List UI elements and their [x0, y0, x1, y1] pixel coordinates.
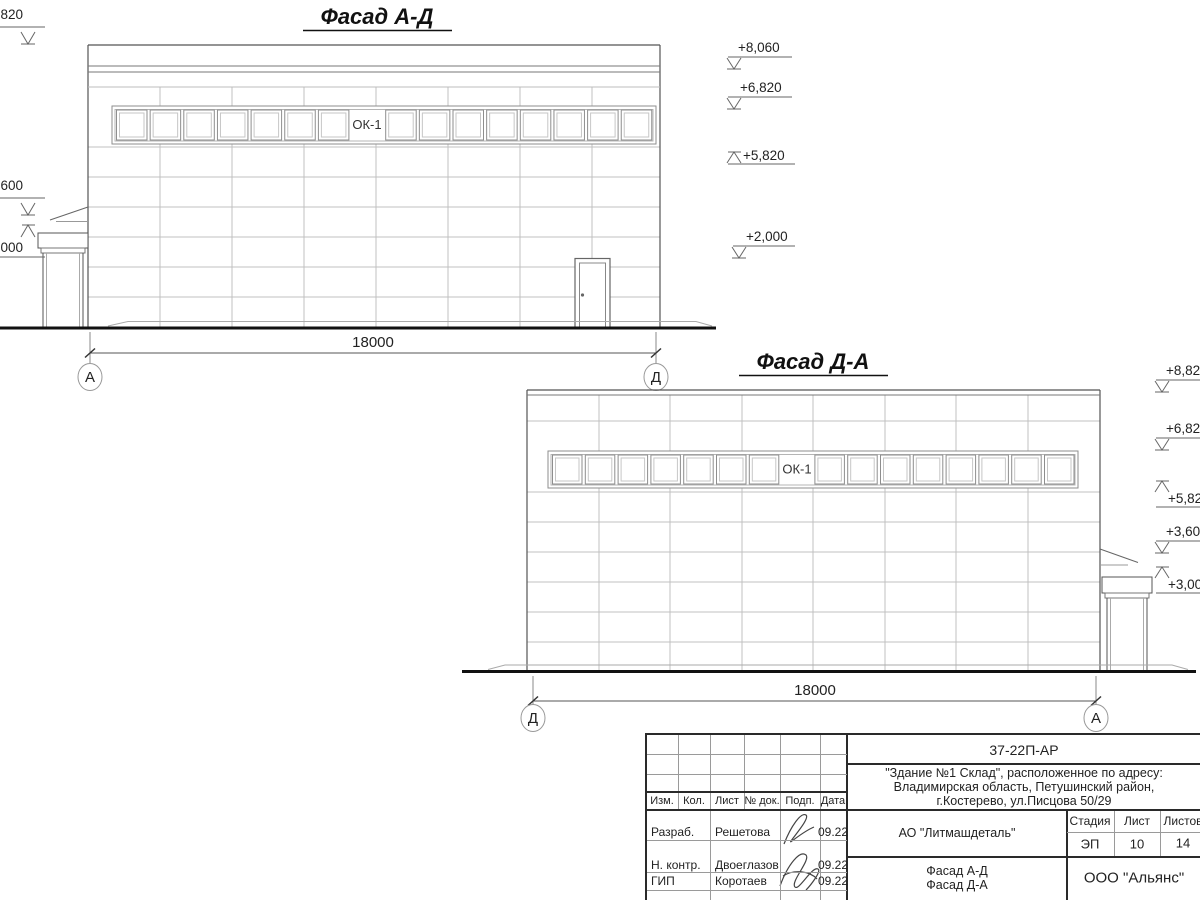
facade-ad-title: Фасад А-Д: [321, 4, 434, 29]
window-band-label: ОК-1: [352, 117, 381, 132]
axis-bubble-a: А: [78, 364, 102, 391]
object-address-line: Владимирская область, Петушинский район,: [894, 780, 1155, 794]
row-name: Коротаев: [715, 874, 767, 888]
sheet-title-line: Фасад Д-А: [926, 878, 987, 892]
row-date: 09.22: [818, 825, 848, 839]
svg-text:А: А: [85, 369, 95, 386]
elevation-mark-icon: [21, 225, 35, 237]
door-handle: [581, 293, 584, 296]
facade-da-dimension: 18000: [528, 676, 1101, 711]
drawing-sheet: { "facade1": { "title": "Фасад А-Д", "wi…: [0, 0, 1200, 900]
elevation-mark: +5,82: [1155, 481, 1200, 507]
facade-da-title: Фасад Д-А: [757, 349, 870, 374]
svg-text:+6,82: +6,82: [1166, 421, 1200, 436]
ground-line: [0, 327, 716, 330]
col-kol: Кол.: [683, 795, 705, 807]
facade-ad: Фасад А-Д ОК-1: [0, 4, 795, 391]
facade-da: Фасад Д-А ОК-1: [462, 349, 1200, 732]
sheet-title-line: Фасад А-Д: [926, 864, 987, 878]
row-role: Разраб.: [651, 825, 694, 839]
elevation-mark-icon: [732, 247, 746, 258]
stage-header: Стадия: [1070, 814, 1111, 828]
col-izm: Изм.: [650, 795, 674, 807]
elevation-mark: +3,00: [1155, 567, 1200, 593]
row-role: Н. контр.: [651, 858, 701, 872]
doc-number: 37-22П-АР: [989, 742, 1058, 758]
svg-text:+6,820: +6,820: [740, 80, 782, 95]
elevation-mark: +8,060: [727, 40, 792, 69]
svg-text:+3,60: +3,60: [1166, 524, 1200, 539]
svg-text:820: 820: [0, 7, 23, 22]
svg-text:+8,82: +8,82: [1166, 363, 1200, 378]
elevation-mark: 600: [0, 178, 45, 215]
elevation-mark: +6,82: [1155, 421, 1200, 450]
elevation-mark-icon: [1155, 542, 1169, 553]
axis-bubble-a: А: [1084, 705, 1108, 732]
svg-text:+5,820: +5,820: [743, 148, 785, 163]
sheet-header: Лист: [1124, 814, 1150, 828]
title-block: Изм. Кол. Лист № док. Подп. Дата Разраб.…: [645, 733, 1200, 900]
sheets-header: Листов: [1164, 814, 1200, 828]
client-name: АО "Литмашдеталь": [899, 826, 1016, 840]
axis-bubble-d: Д: [644, 364, 668, 391]
elevation-mark: +3,60: [1155, 524, 1200, 553]
svg-text:+8,060: +8,060: [738, 40, 780, 55]
row-name: Двоеглазов: [715, 858, 779, 872]
svg-text:+3,00: +3,00: [1168, 577, 1200, 592]
row-role: ГИП: [651, 874, 675, 888]
facade-ad-window-band: ОК-1: [112, 106, 656, 144]
organization-name: ООО "Альянс": [1084, 870, 1184, 887]
row-date: 09.22: [818, 858, 848, 872]
dimension-value: 18000: [352, 334, 394, 351]
canopy-slope: [50, 207, 88, 220]
svg-text:А: А: [1091, 710, 1101, 727]
ground-line: [462, 670, 1196, 673]
stage-value: ЭП: [1081, 837, 1100, 852]
apron-line: [488, 665, 1188, 670]
elevation-mark-icon: [1155, 381, 1169, 392]
elevation-mark-icon: [727, 58, 741, 69]
object-address-line: г.Костерево, ул.Писцова 50/29: [937, 794, 1112, 808]
facade-da-panel-grid: [527, 395, 1100, 672]
elevation-mark: +6,820: [727, 80, 792, 109]
svg-text:Д: Д: [651, 369, 661, 386]
col-ndok: № док.: [744, 795, 779, 807]
sheet-value: 10: [1130, 837, 1144, 852]
facade-da-annex: [1100, 549, 1152, 670]
svg-text:600: 600: [0, 178, 23, 193]
elevation-mark-icon: [727, 152, 741, 163]
svg-text:000: 000: [0, 240, 23, 255]
elevation-mark: 820: [0, 7, 45, 44]
elevation-mark-icon: [1155, 567, 1169, 578]
axis-bubble-d: Д: [521, 705, 545, 732]
facade-ad-door: [575, 259, 610, 328]
svg-text:+5,82: +5,82: [1168, 491, 1200, 506]
elevation-mark-icon: [727, 98, 741, 109]
col-podp: Подп.: [785, 795, 814, 807]
apron-line: [108, 322, 712, 327]
facade-da-window-band: ОК-1: [548, 451, 1078, 488]
row-name: Решетова: [715, 825, 770, 839]
facade-ad-annex: [38, 207, 88, 328]
elevation-mark: +2,000: [732, 229, 795, 258]
canopy-slope: [1100, 549, 1138, 563]
sheets-value: 14: [1176, 836, 1190, 851]
facade-ad-dimension: 18000: [85, 332, 661, 363]
elevation-mark: +8,82: [1155, 363, 1200, 392]
elevation-mark: +5,820: [727, 148, 795, 164]
dimension-value: 18000: [794, 682, 836, 699]
elevation-mark-icon: [21, 32, 35, 44]
elevation-mark-icon: [1155, 481, 1169, 492]
elevation-mark-icon: [1155, 439, 1169, 450]
col-data: Дата: [821, 795, 845, 807]
svg-text:Д: Д: [528, 710, 538, 727]
elevation-mark-icon: [21, 203, 35, 215]
window-band-label: ОК-1: [782, 462, 811, 477]
row-date: 09.22: [818, 874, 848, 888]
col-list: Лист: [715, 795, 739, 807]
svg-text:+2,000: +2,000: [746, 229, 788, 244]
facade-ad-walls: [88, 45, 660, 328]
object-address-line: "Здание №1 Склад", расположенное по адре…: [885, 766, 1163, 780]
